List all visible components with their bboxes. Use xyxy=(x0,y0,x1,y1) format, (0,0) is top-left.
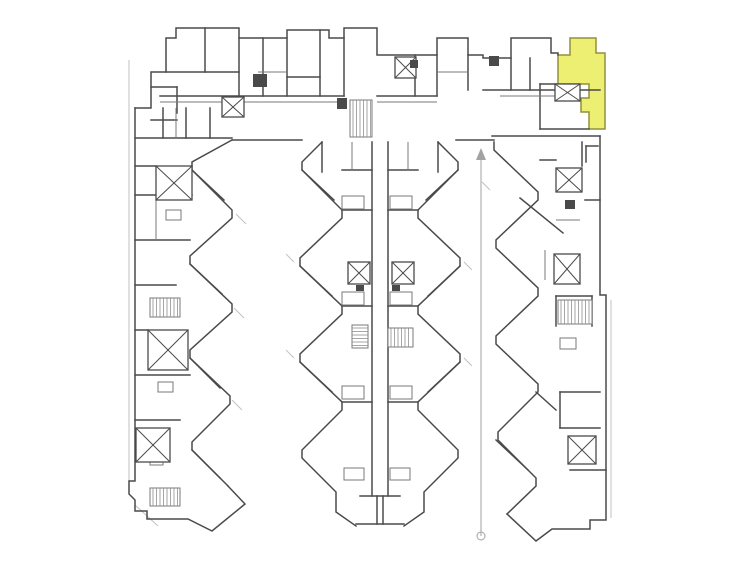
elevator-core-icon xyxy=(392,262,414,284)
dimension-arrow-icon xyxy=(476,148,486,160)
right-wing-walls xyxy=(494,136,606,541)
elevator-core-icon xyxy=(222,97,244,117)
elevator-core-icon xyxy=(148,330,188,370)
stair-run-icon xyxy=(150,488,180,506)
elevator-core-icon xyxy=(136,428,170,462)
floor-plan-page xyxy=(0,0,756,567)
stair-run-icon xyxy=(350,100,372,137)
elevator-core-icon xyxy=(554,254,580,284)
elevator-core-icon xyxy=(555,84,580,101)
stair-run-icon xyxy=(150,298,180,317)
stairs xyxy=(150,100,592,506)
center-wing-walls xyxy=(300,142,460,526)
elevator-core-icon xyxy=(568,436,596,464)
stair-run-icon xyxy=(352,325,368,348)
floor-plan xyxy=(0,0,756,567)
stair-run-icon xyxy=(388,328,413,347)
dimension-line xyxy=(476,148,486,540)
stair-run-icon xyxy=(558,300,592,324)
elevator-core-icon xyxy=(156,166,192,200)
elevator-core-icon xyxy=(348,262,370,284)
elevator-core-icon xyxy=(556,168,582,192)
